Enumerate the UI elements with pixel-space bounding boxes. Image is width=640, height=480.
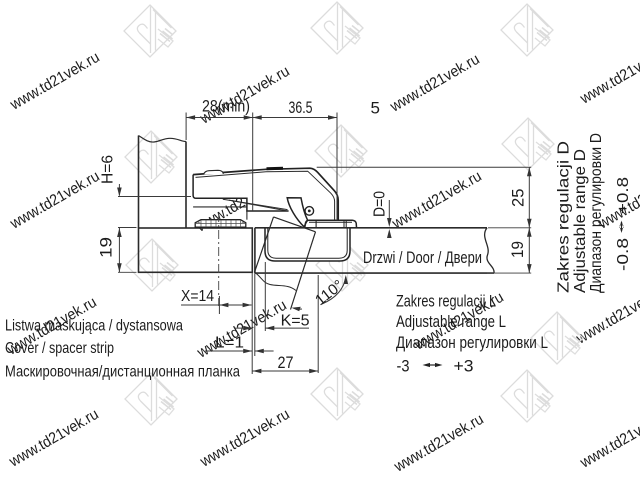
svg-text:L=1: L=1: [215, 335, 244, 352]
svg-text:-3: -3: [397, 358, 410, 376]
svg-text:-0.8: -0.8: [615, 238, 632, 271]
svg-text:+0.8: +0.8: [615, 177, 632, 214]
svg-text:5: 5: [371, 99, 380, 118]
svg-text:Zakres regulacji D: Zakres regulacji D: [556, 141, 573, 293]
svg-text:Adjustable range L: Adjustable range L: [396, 313, 506, 331]
svg-text:27: 27: [278, 354, 294, 372]
svg-text:Listwa maskująca / dystansowa: Listwa maskująca / dystansowa: [5, 318, 183, 335]
svg-text:Маскировочная/дистанционная пл: Маскировочная/дистанционная планка: [5, 364, 240, 381]
svg-text:D=0: D=0: [372, 191, 389, 217]
svg-text:+3: +3: [454, 358, 474, 376]
svg-text:36.5: 36.5: [289, 98, 313, 117]
svg-text:K=5: K=5: [281, 313, 310, 330]
svg-text:28(min): 28(min): [202, 98, 250, 116]
svg-text:Zakres regulacji L: Zakres regulacji L: [396, 292, 496, 310]
svg-text:Диапазон регулировки D: Диапазон регулировки D: [588, 133, 605, 293]
svg-text:25: 25: [510, 189, 528, 208]
svg-text:19: 19: [98, 237, 116, 258]
svg-text:Drzwi / Door / Двери: Drzwi / Door / Двери: [363, 249, 482, 267]
svg-text:X=14: X=14: [181, 288, 214, 305]
svg-text:Диапазон регулировки L: Диапазон регулировки L: [396, 334, 548, 352]
svg-text:19: 19: [509, 241, 527, 258]
svg-text:Adjustable range D: Adjustable range D: [572, 149, 589, 293]
svg-text:Cover / spacer strip: Cover / spacer strip: [5, 340, 114, 357]
svg-text:H=6: H=6: [100, 155, 117, 184]
